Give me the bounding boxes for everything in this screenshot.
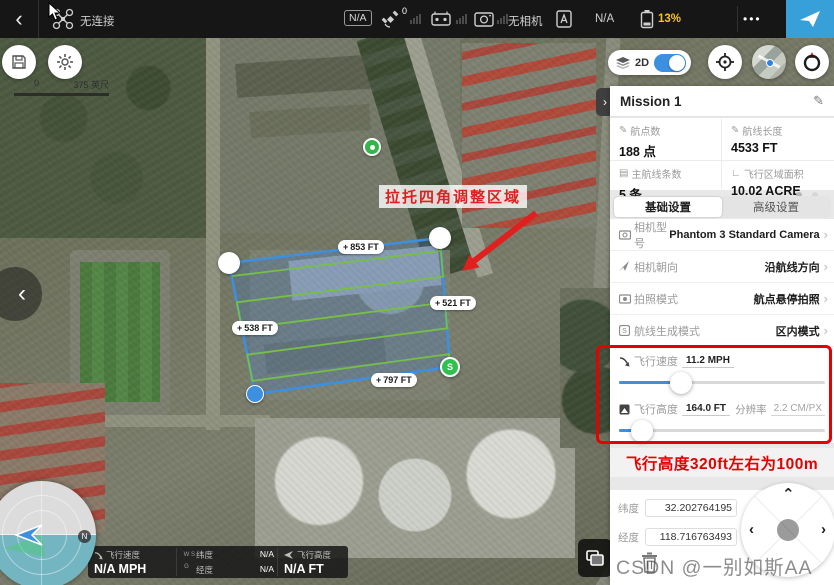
map-mode-toggle[interactable] <box>654 54 686 72</box>
altitude-slider-row: 飞行高度 164.0 FT 分辨率 2.2 CM/PX <box>610 395 834 443</box>
scale-bar <box>14 93 109 96</box>
back-button[interactable]: ‹ <box>0 0 38 38</box>
setting-camera-model[interactable]: 相机型号Phantom 3 Standard Camera› <box>610 219 834 251</box>
top-status-bar: ‹ 无连接 N/A 0 无相机 N/A 13% ••• <box>0 0 834 38</box>
resolution-value: 2.2 CM/PX <box>771 403 825 416</box>
flight-sliders: 飞行速度 11.2 MPH 飞行高度 164.0 FT 分辨率 2.2 CM/P… <box>610 347 834 443</box>
watermark: CSDN @一别如斯AA <box>616 551 812 580</box>
edge-length-label[interactable]: +521 FT <box>430 296 476 310</box>
locate-button[interactable] <box>708 45 742 79</box>
satellite-signal-bars <box>410 14 421 24</box>
start-point-handle[interactable]: S <box>440 357 460 377</box>
drag-cross-icon: + <box>343 242 348 252</box>
north-badge: N <box>78 530 91 543</box>
satellite-icon <box>381 10 399 28</box>
altitude-slider-icon <box>619 404 630 415</box>
corner-handle-topright[interactable] <box>429 227 451 249</box>
aircraft-arrow-icon <box>14 523 44 547</box>
more-button[interactable]: ••• <box>743 12 762 26</box>
mission-title: Mission 1 <box>620 94 682 109</box>
heading-icon <box>619 261 634 272</box>
map-field <box>80 262 160 402</box>
battery-percent: 13% <box>658 13 681 25</box>
lon-label: 经度 <box>196 564 213 576</box>
speed-icon <box>619 356 630 367</box>
connection-status: 无连接 <box>80 13 115 29</box>
gear-icon <box>56 53 74 71</box>
map-scale: 0375 英尺 <box>14 78 109 96</box>
speed-icon <box>94 551 103 560</box>
area-icon: ∟ <box>731 168 741 179</box>
mode-badge: N/A <box>344 10 372 26</box>
screenshot-button[interactable] <box>578 539 612 577</box>
telemetry-speed-label: 飞行速度 <box>106 549 140 561</box>
scale-distance: 375 英尺 <box>73 78 109 91</box>
compass-icon <box>801 51 823 73</box>
lon-value: N/A <box>260 564 274 576</box>
nudge-right-icon[interactable]: › <box>821 521 826 538</box>
map-bld <box>235 52 407 98</box>
waypoint-icon: ✎ <box>619 125 627 136</box>
tab-basic-settings[interactable]: 基础设置 <box>614 197 722 217</box>
satellite-count: 0 <box>402 6 407 16</box>
flight-mode-icon <box>555 9 573 29</box>
map-road-h <box>0 415 270 427</box>
lat-label: 纬度 <box>196 549 213 561</box>
altitude-note: 飞行高度320ft左右为100m <box>610 448 834 477</box>
camera-signal-bars <box>497 14 508 24</box>
edge-length-label[interactable]: +853 FT <box>338 240 384 254</box>
altitude-slider-thumb[interactable] <box>631 420 653 442</box>
corner-handle-bottomleft[interactable] <box>246 385 264 403</box>
edit-mission-icon[interactable]: ✎ <box>813 93 824 109</box>
nudge-center-knob[interactable] <box>777 519 799 541</box>
wgs-label: W G S <box>183 549 192 576</box>
mouse-cursor <box>48 2 61 21</box>
drag-cross-icon: + <box>376 375 381 385</box>
rc-icon <box>431 11 451 27</box>
telemetry-alt-label: 飞行高度 <box>297 549 331 561</box>
locate-icon <box>715 52 735 72</box>
app-window: S +853 FT +521 FT +538 FT +797 FT 拉托四角调整… <box>0 0 834 585</box>
minimap-button[interactable] <box>752 45 786 79</box>
settings-list: 相机型号Phantom 3 Standard Camera› 相机朝向沿航线方向… <box>610 219 834 347</box>
tab-advanced-settings[interactable]: 高级设置 <box>722 197 830 217</box>
mainline-count-icon: ▤ <box>619 168 628 179</box>
altitude-slider-track[interactable] <box>619 429 825 432</box>
fly-button[interactable] <box>786 0 834 38</box>
speed-value: 11.2 MPH <box>682 355 734 368</box>
settings-button[interactable] <box>48 45 82 79</box>
chevron-right-icon: › <box>824 227 828 242</box>
start-label: S <box>447 362 453 372</box>
edge-length-label[interactable]: +797 FT <box>371 373 417 387</box>
photo-mode-icon <box>619 294 634 304</box>
tutorial-annotation: 拉托四角调整区域 <box>379 185 527 208</box>
setting-camera-heading[interactable]: 相机朝向沿航线方向› <box>610 251 834 283</box>
rc-signal-bars <box>456 14 467 24</box>
chevron-right-icon: › <box>824 323 828 338</box>
chevron-right-icon: › <box>824 259 828 274</box>
latitude-label: 纬度 <box>618 501 639 516</box>
route-mode-icon: S <box>619 325 634 336</box>
longitude-label: 经度 <box>618 530 639 545</box>
scale-zero: 0 <box>34 78 39 91</box>
altitude-icon <box>284 551 294 560</box>
map-midblds <box>250 250 450 400</box>
latitude-input[interactable] <box>645 499 737 517</box>
mission-stats: ✎航点数188 点 ✎航线长度4533 FT ▤主航线条数5 条 ∟飞行区域面积… <box>610 118 834 190</box>
battery-icon <box>640 9 654 29</box>
speed-slider-row: 飞行速度 11.2 MPH <box>610 347 834 395</box>
map-bld <box>264 332 386 374</box>
drag-cross-icon: + <box>237 323 242 333</box>
compass-button[interactable] <box>795 45 829 79</box>
telemetry-speed-value: N/A MPH <box>94 562 170 576</box>
map-stadium <box>70 250 170 415</box>
copy-icon <box>586 550 604 566</box>
edge-length-label[interactable]: +538 FT <box>232 321 278 335</box>
map-road-v <box>206 38 220 430</box>
setting-route-mode[interactable]: S 航线生成模式区内模式› <box>610 315 834 347</box>
waypoint-count: 188 点 <box>619 141 721 160</box>
nudge-left-icon[interactable]: ‹ <box>749 521 754 538</box>
camera-icon <box>619 230 634 240</box>
map-white-complex <box>255 418 575 558</box>
speed-slider-thumb[interactable] <box>670 372 692 394</box>
route-length: 4533 FT <box>731 141 834 155</box>
corner-handle-topleft[interactable] <box>218 252 240 274</box>
flight-mode-value: N/A <box>595 13 614 25</box>
altitude-value: 164.0 FT <box>682 403 730 416</box>
telemetry-alt-value: N/A FT <box>284 562 342 576</box>
nudge-up-icon[interactable]: ⌃ <box>782 485 795 503</box>
save-button[interactable] <box>2 45 36 79</box>
map-green-marker[interactable] <box>363 138 381 156</box>
longitude-input[interactable] <box>645 528 737 546</box>
speed-slider-track[interactable] <box>619 381 825 384</box>
map-bld <box>249 104 371 138</box>
route-length-icon: ✎ <box>731 125 739 136</box>
telemetry-bar: 飞行速度 N/A MPH W G S 纬度N/A 经度N/A 飞行高度 N/A … <box>88 546 348 578</box>
camera-status: 无相机 <box>508 13 543 29</box>
chevron-right-icon: › <box>824 291 828 306</box>
map-mode-label: 2D <box>635 57 649 69</box>
layers-icon <box>616 57 630 69</box>
setting-photo-mode[interactable]: 拍照模式航点悬停拍照› <box>610 283 834 315</box>
plane-icon <box>799 9 821 29</box>
save-icon <box>11 54 27 70</box>
map-mode-pill[interactable]: 2D <box>608 50 691 75</box>
svg-text:S: S <box>622 328 627 335</box>
resolution-label: 分辨率 <box>735 402 767 417</box>
lat-value: N/A <box>260 549 274 561</box>
drag-cross-icon: + <box>435 298 440 308</box>
settings-tabs: 基础设置 高级设置 <box>613 196 831 218</box>
camera-icon <box>474 11 494 27</box>
